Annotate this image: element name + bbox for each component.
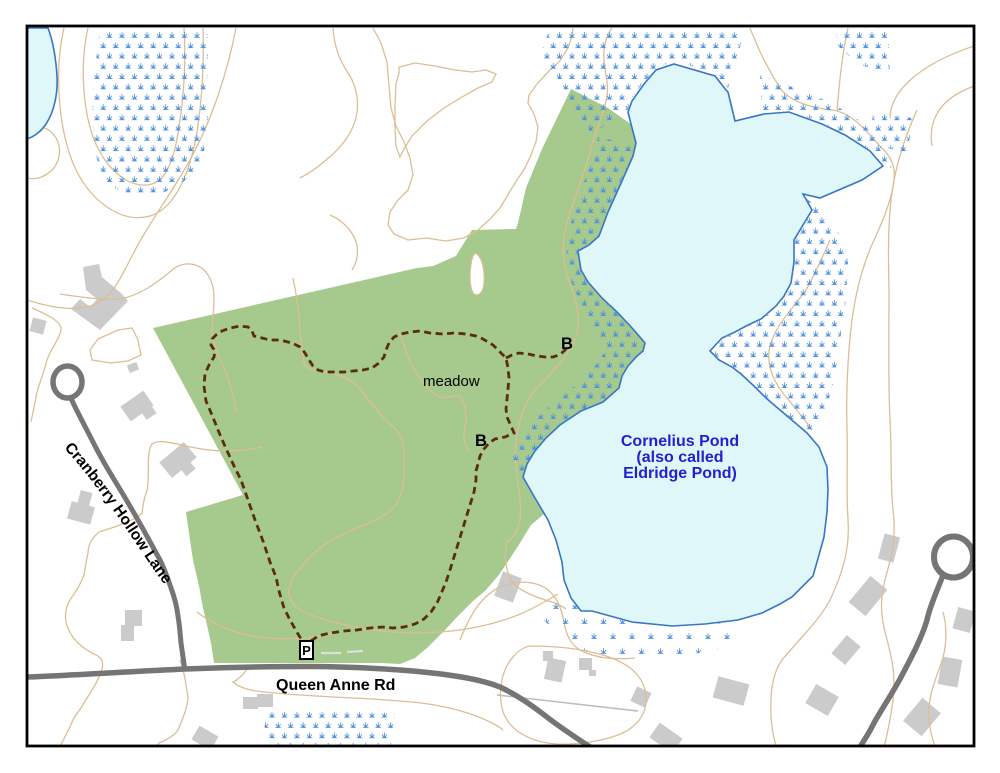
svg-text:P: P [302,643,311,658]
svg-text:meadow: meadow [423,373,480,390]
svg-text:B: B [475,432,487,450]
svg-text:Eldridge Pond): Eldridge Pond) [623,465,737,482]
svg-text:Cornelius Pond: Cornelius Pond [621,433,739,450]
svg-text:B: B [561,335,573,353]
svg-text:(also called: (also called [636,449,723,466]
svg-text:Queen Anne Rd: Queen Anne Rd [276,677,395,694]
